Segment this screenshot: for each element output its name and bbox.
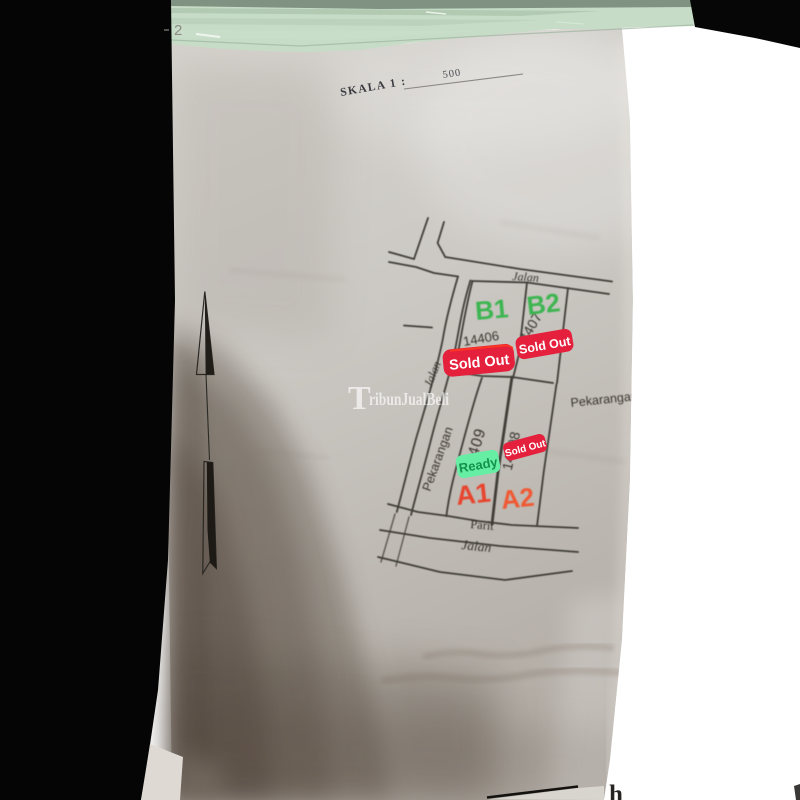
svg-text:A1: A1	[454, 478, 491, 511]
svg-text:Jalan: Jalan	[461, 537, 493, 555]
svg-text:Parit: Parit	[470, 517, 495, 533]
svg-text:Jalan: Jalan	[512, 269, 540, 285]
svg-text:B2: B2	[525, 287, 562, 321]
svg-text:h: h	[609, 781, 623, 800]
svg-text:T: T	[348, 380, 371, 417]
svg-text:2: 2	[174, 22, 182, 39]
svg-text:A2: A2	[499, 482, 535, 515]
svg-text:ribunJualBeli: ribunJualBeli	[369, 389, 449, 409]
svg-text:B1: B1	[474, 293, 510, 326]
